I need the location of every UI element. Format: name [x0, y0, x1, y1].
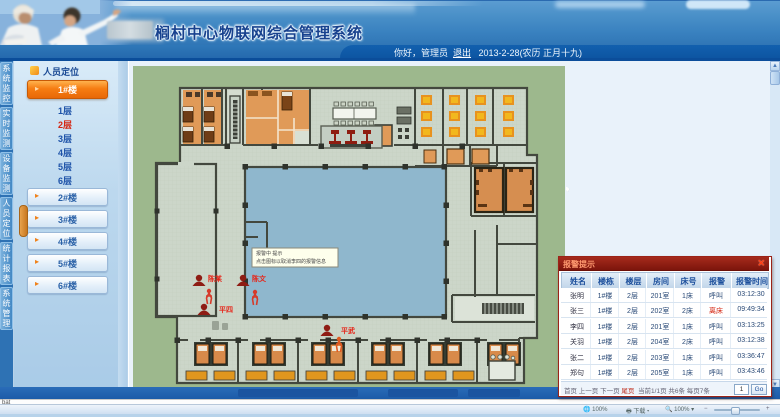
svg-text:点击图标以取消李四的报警信息: 点击图标以取消李四的报警信息 [256, 258, 326, 265]
svg-text:陈文: 陈文 [252, 274, 267, 283]
svg-text:平四: 平四 [219, 306, 233, 314]
svg-text:陈某: 陈某 [208, 274, 223, 283]
svg-text:平武: 平武 [341, 326, 355, 335]
svg-text:报警中 提示: 报警中 提示 [256, 250, 282, 257]
